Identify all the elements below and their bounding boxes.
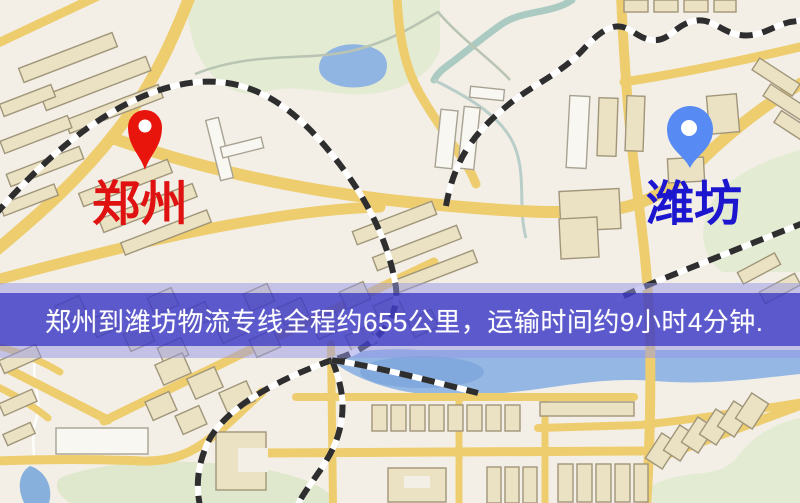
map-building bbox=[486, 405, 501, 431]
map-building bbox=[56, 428, 148, 454]
map-building bbox=[429, 405, 444, 431]
route-banner: 郑州到潍坊物流专线全程约655公里，运输时间约9小时4分钟. bbox=[0, 283, 800, 358]
map-building bbox=[597, 98, 618, 157]
map-building bbox=[448, 405, 463, 431]
map-building bbox=[558, 464, 573, 502]
destination-pin-hole bbox=[681, 120, 697, 136]
map-building bbox=[654, 0, 678, 12]
map-screenshot: 郑州 潍坊 郑州到潍坊物流专线全程约655公里，运输时间约9小时4分钟. bbox=[0, 0, 800, 503]
map-building bbox=[596, 464, 611, 502]
map-building bbox=[505, 467, 519, 503]
map-canvas: 郑州 潍坊 bbox=[0, 0, 800, 503]
map-building bbox=[559, 217, 599, 259]
map-building bbox=[540, 402, 634, 416]
map-building bbox=[487, 467, 501, 503]
map-building bbox=[625, 96, 645, 152]
map-building bbox=[238, 448, 268, 472]
basemap-layer bbox=[0, 0, 800, 503]
origin-label: 郑州 bbox=[92, 178, 188, 231]
map-building bbox=[577, 464, 592, 502]
road bbox=[258, 451, 642, 453]
map-building bbox=[714, 0, 736, 12]
route-banner-text: 郑州到潍坊物流专线全程约655公里，运输时间约9小时4分钟. bbox=[45, 302, 764, 339]
map-building bbox=[410, 405, 425, 431]
map-building bbox=[391, 405, 406, 431]
map-building bbox=[566, 96, 590, 169]
origin-pin-hole bbox=[139, 120, 152, 133]
map-building bbox=[615, 464, 630, 502]
map-building bbox=[505, 405, 520, 431]
map-building bbox=[372, 405, 387, 431]
map-building bbox=[684, 0, 708, 12]
map-building bbox=[523, 467, 537, 503]
map-building bbox=[634, 464, 648, 502]
map-building bbox=[624, 0, 648, 12]
map-building bbox=[467, 405, 482, 431]
destination-label: 潍坊 bbox=[646, 178, 742, 231]
map-building bbox=[404, 476, 430, 488]
